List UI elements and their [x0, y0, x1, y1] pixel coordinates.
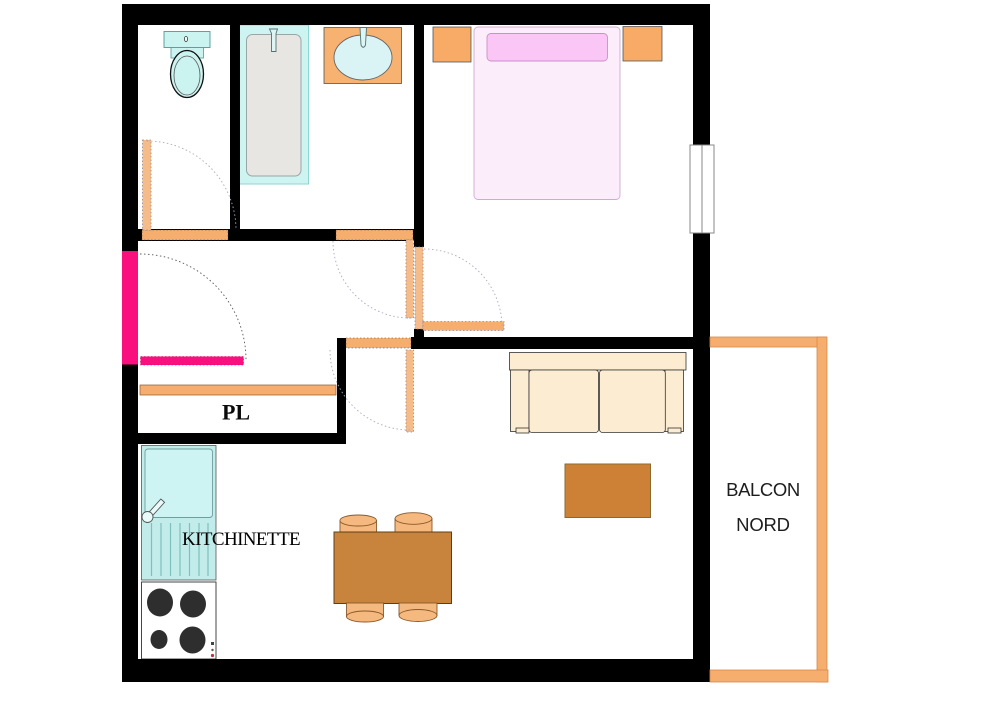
- svg-text:PL: PL: [222, 400, 250, 425]
- svg-text:BALCON: BALCON: [726, 479, 800, 500]
- svg-text:KITCHINETTE: KITCHINETTE: [182, 529, 300, 550]
- svg-text:NORD: NORD: [736, 514, 790, 535]
